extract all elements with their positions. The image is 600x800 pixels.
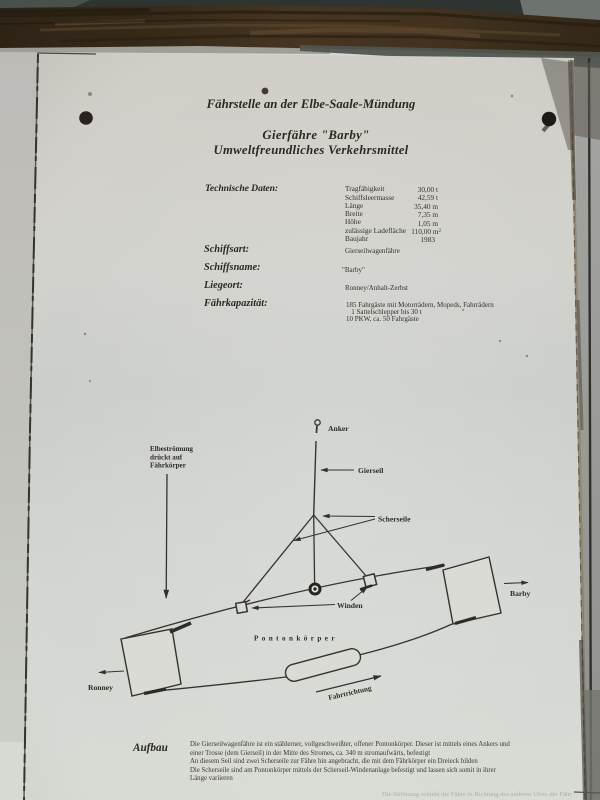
svg-text:Elbeströmung: Elbeströmung: [150, 445, 193, 453]
svg-text:Pontonkörper: Pontonkörper: [254, 635, 338, 643]
svg-text:drückt auf: drückt auf: [150, 454, 183, 462]
svg-text:Barby: Barby: [510, 589, 530, 598]
svg-text:Fährkörper: Fährkörper: [150, 462, 186, 470]
svg-text:Ronney: Ronney: [88, 683, 113, 692]
svg-text:Scherseile: Scherseile: [378, 515, 411, 524]
svg-text:Die Strömung schiebt die Fähre: Die Strömung schiebt die Fähre in Richtu…: [382, 791, 572, 798]
svg-text:Gierseil: Gierseil: [358, 466, 383, 475]
svg-text:Winden: Winden: [337, 601, 363, 610]
svg-text:Anker: Anker: [328, 424, 349, 433]
